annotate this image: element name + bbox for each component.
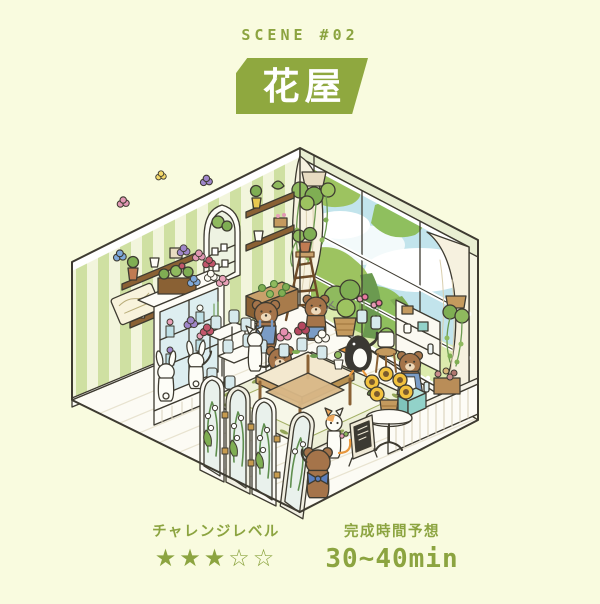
challenge-block: チャレンジレベル ★★★☆☆ [126, 520, 306, 573]
screen-panel [200, 376, 224, 482]
flower-shop-illustration [0, 0, 600, 600]
dried-flower-crate [434, 368, 460, 394]
challenge-stars: ★★★☆☆ [126, 544, 306, 573]
time-value: 30~40min [304, 545, 480, 574]
time-block: 完成時間予想 30~40min [304, 520, 480, 574]
challenge-label: チャレンジレベル [126, 520, 306, 541]
time-label: 完成時間予想 [304, 520, 480, 541]
scene-card: { "scene": { "label": "SCENE #02", "titl… [0, 0, 600, 600]
